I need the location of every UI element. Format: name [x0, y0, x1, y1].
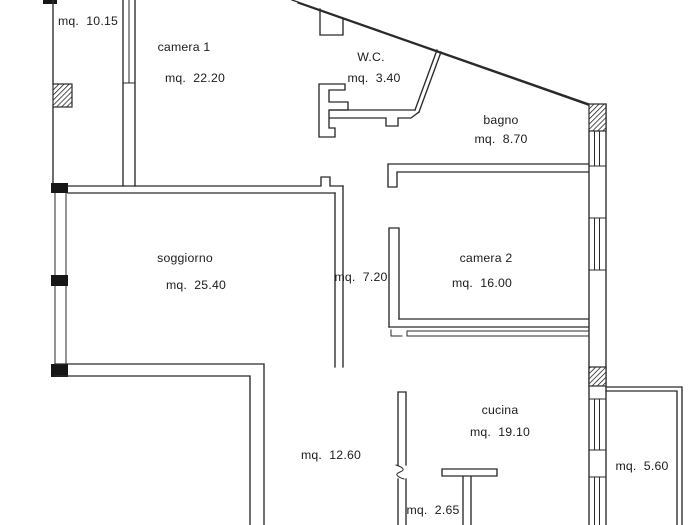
pillar-hatched-left	[53, 84, 72, 107]
wall-wc-diagonal	[415, 50, 441, 112]
window-mullions-right	[595, 131, 600, 525]
wall-tick-top-left	[43, 0, 57, 4]
pillar-hatched-top-right	[589, 104, 606, 131]
labels: mq. 10.15 camera 1 mq. 22.20 W.C. mq. 3.…	[58, 14, 669, 517]
room-label-camera2: camera 2	[460, 251, 513, 265]
room-label-soggiorno: soggiorno	[157, 251, 213, 265]
area-label-wc: mq. 3.40	[347, 71, 400, 85]
area-label-cucina: mq. 19.10	[470, 425, 530, 439]
wall-soggiorno-top	[53, 177, 343, 193]
area-label-ripostiglio: mq. 2.65	[406, 503, 459, 517]
wall-cucina-top	[391, 330, 588, 336]
area-label-camera2: mq. 16.00	[452, 276, 512, 290]
pillar-solid-3	[51, 364, 68, 377]
wall-balcony	[606, 387, 682, 525]
area-label-soggiorno: mq. 25.40	[166, 278, 226, 292]
pillar-solid-1	[51, 183, 68, 193]
room-label-camera1: camera 1	[158, 40, 211, 54]
area-label-bagno: mq. 8.70	[474, 132, 527, 146]
room-label-cucina: cucina	[482, 403, 519, 417]
pillar-hatched-bottom-right	[589, 367, 606, 386]
wall-camera2-bottom	[389, 319, 588, 327]
wall-soggiorno-bottom	[55, 364, 264, 525]
area-label-corridoio: mq. 7.20	[334, 270, 387, 284]
room-label-wc: W.C.	[357, 50, 384, 64]
floor-plan-drawing: mq. 10.15 camera 1 mq. 22.20 W.C. mq. 3.…	[0, 0, 700, 525]
window-sills-right	[589, 131, 606, 477]
wall-wc-bottom	[330, 110, 419, 126]
floor-plan: mq. 10.15 camera 1 mq. 22.20 W.C. mq. 3.…	[0, 0, 700, 525]
wall-exterior-right	[589, 104, 606, 525]
room-label-bagno: bagno	[483, 113, 518, 127]
wall-cucina-left	[398, 392, 406, 525]
area-label-storage: mq. 10.15	[58, 14, 118, 28]
window-divider-glass	[123, 0, 135, 83]
wall-camera2-top	[388, 164, 588, 187]
area-label-balcone: mq. 5.60	[615, 459, 668, 473]
wall-camera1-corner	[320, 9, 343, 35]
wall-camera2-left	[389, 228, 399, 327]
pillar-solid-2	[51, 275, 68, 286]
wall-break-symbol	[396, 465, 404, 479]
area-label-camera1: mq. 22.20	[165, 71, 225, 85]
area-label-disimpegno: mq. 12.60	[301, 448, 361, 462]
